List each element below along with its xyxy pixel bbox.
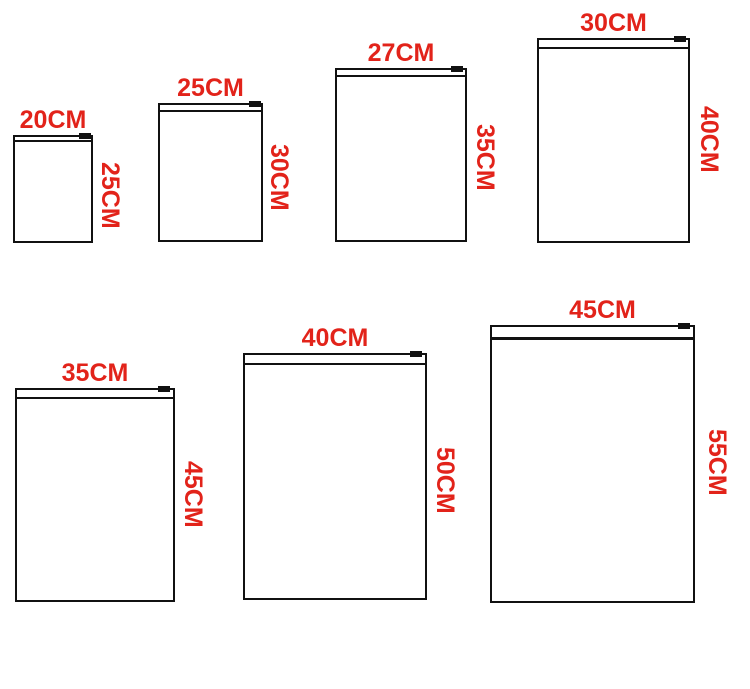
bag-width-label: 30CM	[580, 11, 647, 36]
zipper-seal-line	[337, 75, 465, 77]
zipper-seal-line	[539, 47, 688, 49]
zipper-slider-tab	[674, 36, 686, 42]
bag-width-label: 20CM	[20, 108, 87, 133]
bag-width-label: 27CM	[368, 41, 435, 66]
zipper-bag-35x45: 35CM 45CM	[15, 388, 175, 602]
bag-height-label: 50CM	[432, 447, 457, 514]
zipper-bag-25x30: 25CM 30CM	[158, 103, 263, 242]
zipper-seal-line	[245, 363, 425, 365]
bag-height-label: 30CM	[266, 144, 291, 211]
zipper-seal-line	[17, 397, 173, 399]
bag-height-label: 45CM	[180, 461, 205, 528]
zipper-bag-30x40: 30CM 40CM	[537, 38, 690, 243]
bag-size-chart: { "colors": { "label_red": "#e2231a", "l…	[0, 0, 750, 689]
bag-width-label: 45CM	[569, 298, 636, 323]
zipper-seal-line	[15, 140, 91, 142]
zipper-slider-tab	[410, 351, 422, 357]
bag-width-label: 35CM	[62, 361, 129, 386]
bag-height-label: 35CM	[472, 124, 497, 191]
zipper-bag-45x55: 45CM 55CM	[490, 325, 695, 603]
zipper-slider-tab	[678, 323, 690, 329]
zipper-seal-line	[492, 337, 693, 340]
bag-height-label: 25CM	[97, 162, 122, 229]
zipper-seal-line	[160, 110, 261, 112]
bag-width-label: 25CM	[177, 76, 244, 101]
zipper-bag-27x35: 27CM 35CM	[335, 68, 467, 242]
zipper-bag-20x25: 20CM 25CM	[13, 135, 93, 243]
bag-width-label: 40CM	[302, 326, 369, 351]
zipper-slider-tab	[158, 386, 170, 392]
zipper-slider-tab	[451, 66, 463, 72]
bag-height-label: 40CM	[696, 106, 721, 173]
zipper-bag-40x50: 40CM 50CM	[243, 353, 427, 600]
zipper-slider-tab	[249, 101, 261, 107]
bag-height-label: 55CM	[704, 429, 729, 496]
